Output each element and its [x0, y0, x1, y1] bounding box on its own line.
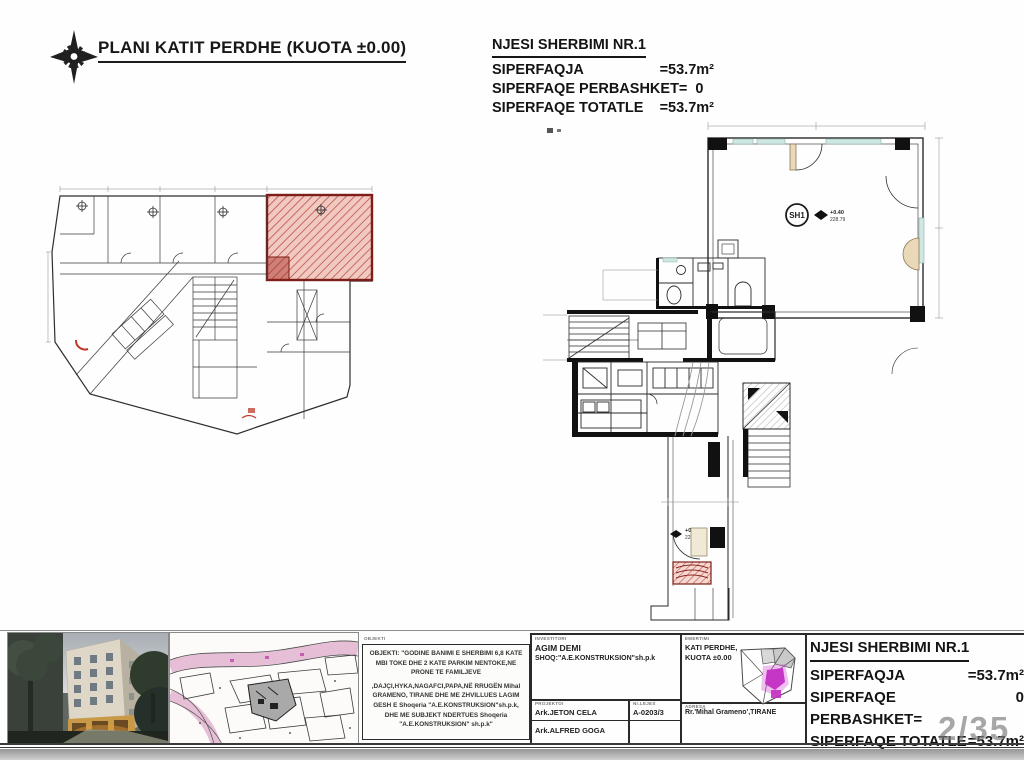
- summary-row-common: SIPERFAQE PERBASHKET= 0: [492, 80, 714, 99]
- unit-summary-top: NJESI SHERBIMI NR.1 SIPERFAQJA =53.7m² S…: [492, 36, 714, 118]
- drafted-label: PROJEKTOI: [535, 701, 564, 706]
- drawing-sheet: PLANI KATIT PERDHE (KUOTA ±0.00) NJESI S…: [0, 0, 1024, 760]
- license-number: A-0203/3: [633, 708, 664, 717]
- sheet-label: EMERTIMI: [685, 636, 709, 641]
- elev-main: 228.79: [830, 217, 846, 223]
- building-render-photo: [8, 633, 168, 743]
- page-number: 2/35: [938, 710, 1010, 748]
- floor-plan-left: [46, 182, 380, 444]
- level-main: +0.40: [830, 210, 844, 216]
- summary-row-total: SIPERFAQE TOTATLE =53.7m²: [492, 99, 714, 118]
- investor-label: INVESTITORI: [535, 636, 566, 641]
- architect-1: Ark.JETON CELA: [535, 708, 597, 717]
- sheet-name-line2: KUOTA ±0.00: [685, 653, 732, 662]
- summary-row-area-tb: SIPERFAQJA =53.7m²: [810, 665, 1024, 687]
- summary-row-area: SIPERFAQJA =53.7m²: [492, 61, 714, 80]
- unit-summary-title-tb: NJESI SHERBIMI NR.1: [810, 637, 969, 662]
- location-key-diagram: [733, 644, 803, 712]
- investor-company: SHOQ:"A.E.KONSTRUKSION"sh.p.k: [535, 655, 655, 662]
- address: Rr.'Mihal Grameno',TIRANE: [685, 709, 776, 716]
- sheet-name-line1: KATI PERDHE,: [685, 643, 737, 652]
- unit-label: SH1: [789, 211, 805, 220]
- architect-2: Ark.ALFRED GOGA: [535, 726, 605, 735]
- unit-summary-title: NJESI SHERBIMI NR.1: [492, 36, 646, 58]
- site-plan-thumbnail: [170, 633, 358, 744]
- floor-plan-right: SH1 +0.40 228.79: [543, 118, 945, 628]
- license-label: Nr.LEJES: [633, 701, 656, 706]
- investor-name: AGIM DEMI: [535, 643, 581, 653]
- object-label: OBJEKTI: [364, 636, 386, 641]
- scan-edge-band: [0, 749, 1024, 760]
- compass-icon: [50, 30, 98, 84]
- page-title: PLANI KATIT PERDHE (KUOTA ±0.00): [98, 38, 406, 63]
- object-description: OBJEKTI: "GODINE BANIMI E SHERBIMI 6,8 K…: [362, 644, 530, 740]
